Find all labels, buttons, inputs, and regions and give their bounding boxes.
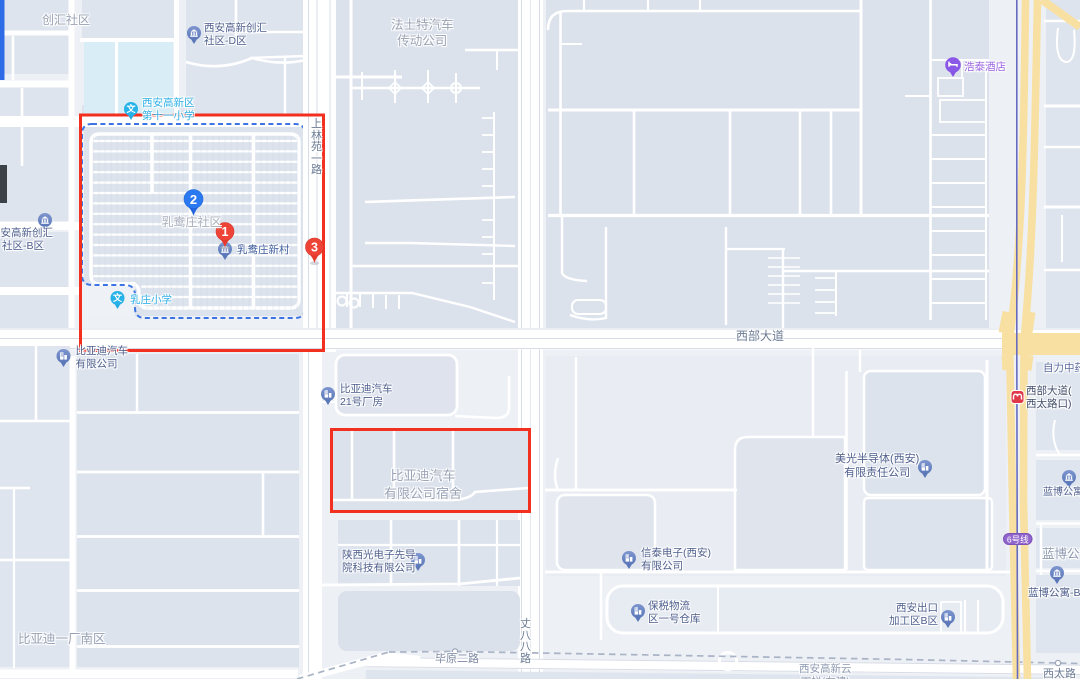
svg-text:3: 3 [311, 241, 318, 255]
svg-text:2: 2 [190, 192, 197, 207]
svg-text:6号线: 6号线 [1007, 534, 1029, 544]
svg-text:1: 1 [222, 225, 229, 239]
